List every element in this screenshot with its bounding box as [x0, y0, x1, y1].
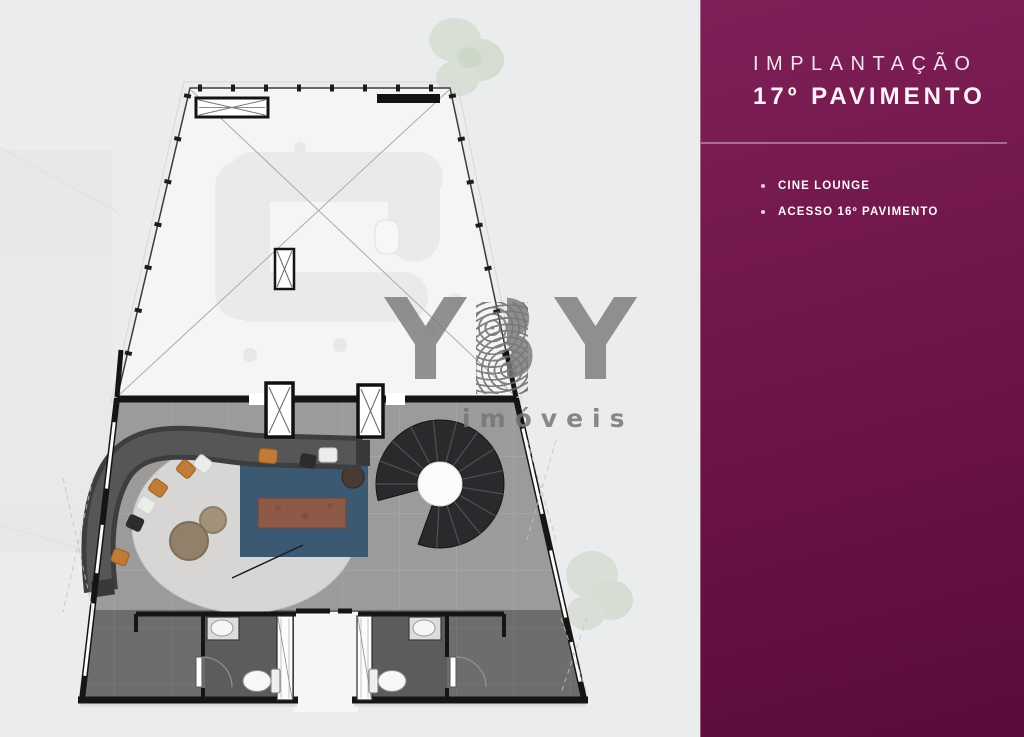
toilet-right-tank: [369, 669, 378, 693]
panel-title-line1: IMPLANTAÇÃO: [753, 53, 986, 76]
bullet-icon: [761, 184, 765, 188]
column: [275, 249, 294, 289]
list-item: ACESSO 16º PAVIMENTO: [761, 199, 938, 225]
central-gap: [294, 612, 358, 712]
coffee-table-large: [170, 522, 208, 560]
media-table: [258, 498, 346, 528]
slide: Y B Y imóveis IMPLANTAÇÃO 17º PAVIMENTO …: [0, 0, 1024, 737]
toilet-left: [243, 671, 271, 692]
feature-label: CINE LOUNGE: [778, 180, 870, 192]
bullet-icon: [761, 210, 765, 214]
toilet-right: [378, 671, 406, 692]
roof-beam: [377, 94, 440, 103]
ghost-bench: [375, 220, 399, 254]
toilet-left-tank: [271, 669, 280, 693]
panel-title-line2: 17º PAVIMENTO: [753, 83, 986, 111]
skylight: [196, 98, 268, 117]
panel-titles: IMPLANTAÇÃO 17º PAVIMENTO: [753, 53, 986, 111]
floor-plan: [0, 0, 700, 737]
stair-core: [418, 462, 462, 506]
feature-label: ACESSO 16º PAVIMENTO: [778, 206, 938, 218]
feature-list: CINE LOUNGE ACESSO 16º PAVIMENTO: [761, 173, 938, 225]
list-item: CINE LOUNGE: [761, 173, 938, 199]
divider: [701, 142, 1007, 144]
info-panel: IMPLANTAÇÃO 17º PAVIMENTO CINE LOUNGE AC…: [700, 0, 1024, 737]
